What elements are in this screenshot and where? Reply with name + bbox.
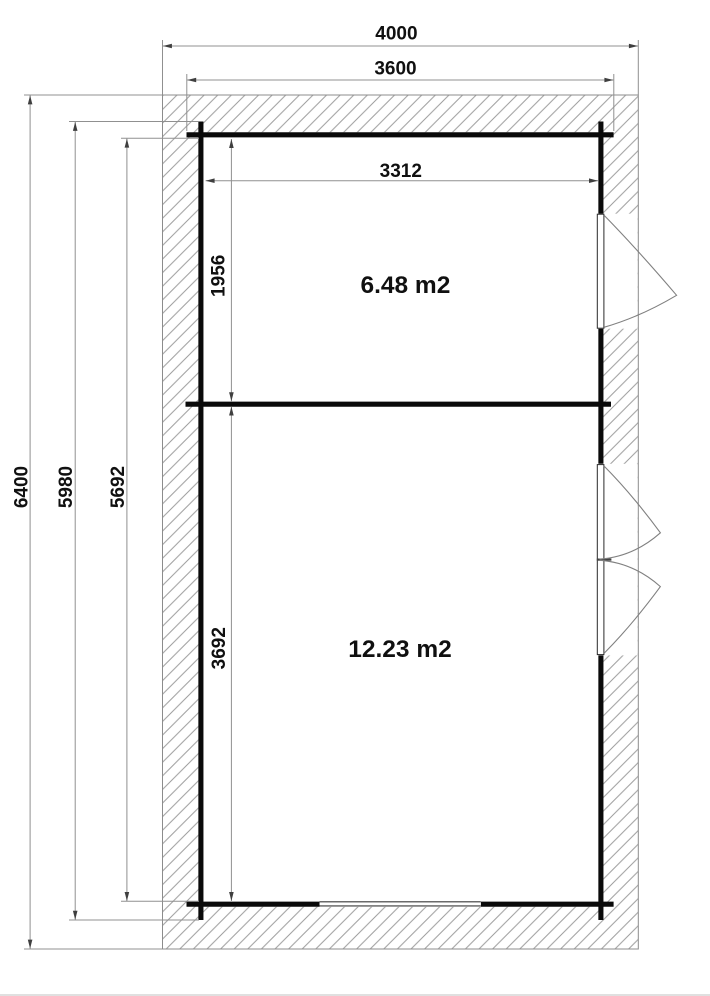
svg-text:5692: 5692 bbox=[108, 466, 129, 508]
svg-text:12.23 m2: 12.23 m2 bbox=[348, 636, 452, 663]
svg-text:3692: 3692 bbox=[209, 627, 230, 669]
svg-text:3600: 3600 bbox=[374, 59, 416, 80]
svg-text:5980: 5980 bbox=[56, 466, 77, 508]
svg-text:4000: 4000 bbox=[375, 24, 417, 45]
svg-text:6.48 m2: 6.48 m2 bbox=[360, 272, 450, 299]
svg-text:6400: 6400 bbox=[11, 466, 32, 508]
svg-text:1956: 1956 bbox=[208, 255, 229, 297]
svg-text:3312: 3312 bbox=[380, 161, 422, 182]
